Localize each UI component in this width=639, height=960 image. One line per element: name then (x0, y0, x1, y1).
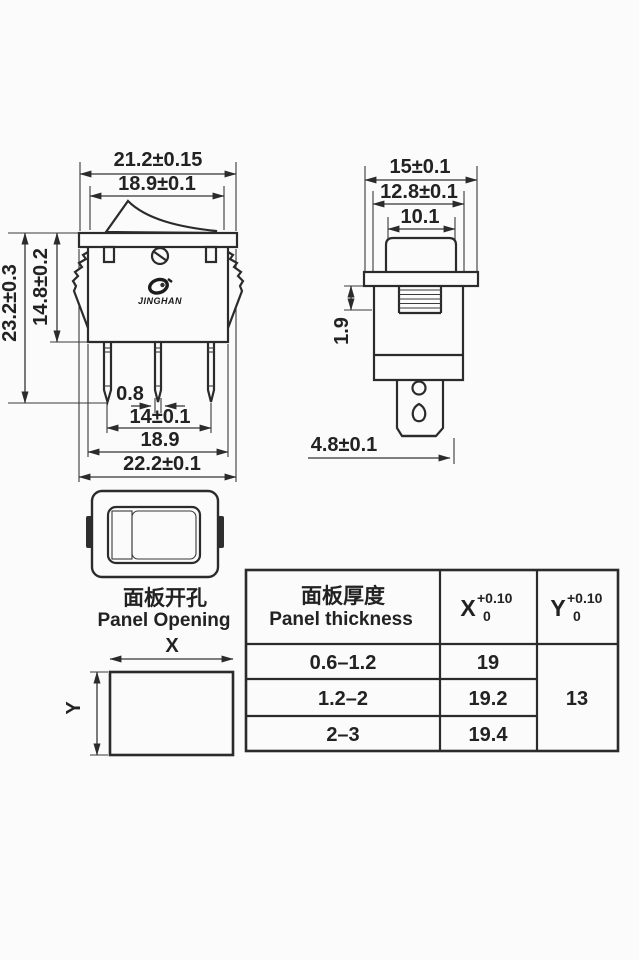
table-row: 2–3 19.4 (326, 724, 508, 746)
header-x-tol-minus: 0 (483, 608, 491, 624)
terminal-side (397, 380, 443, 436)
header-y-tol-plus: +0.10 (567, 590, 603, 606)
panel-opening-title-zh: 面板开孔 (123, 587, 207, 610)
table-row: 1.2–2 19.2 (318, 688, 508, 710)
dim-terminal-width: 4.8±0.1 (311, 434, 378, 456)
dim-pin-pitch: 14±0.1 (129, 406, 190, 428)
panel-opening-drawing: 面板开孔 Panel Opening X Y (63, 491, 233, 755)
dim-snap-height: 1.9 (331, 317, 353, 345)
side-view: 15±0.1 12.8±0.1 10.1 1.9 4.8±0.1 (308, 156, 478, 464)
header-x-base: X (460, 595, 476, 621)
cell-thickness-3: 2–3 (326, 724, 359, 746)
dim-rocker-width: 18.9±0.1 (118, 173, 196, 195)
dim-flange-depth: 15±0.1 (389, 156, 450, 178)
dim-flange-width-top: 21.2±0.15 (114, 149, 203, 171)
header-y-tol-minus: 0 (573, 608, 581, 624)
front-view: JINGHAN 21.2±0.15 18.9±0.1 23.2±0.3 14.8… (0, 149, 243, 482)
brand-logo: JINGHAN (138, 277, 182, 306)
dim-rocker-depth: 10.1 (401, 206, 440, 228)
table-row: 0.6–1.2 19 (310, 652, 499, 674)
dim-flange-width-bottom: 22.2±0.1 (123, 453, 201, 475)
mounting-flange-side (364, 272, 478, 286)
rocker-actuator-front (106, 201, 216, 233)
rocker-actuator-side (386, 238, 456, 272)
cell-thickness-1: 0.6–1.2 (310, 652, 377, 674)
x-dim-label: X (165, 635, 179, 657)
dim-body-width: 18.9 (141, 429, 180, 451)
cell-y-merged: 13 (566, 688, 588, 710)
switch-body-side (374, 286, 463, 380)
y-dim-label: Y (63, 701, 85, 715)
header-thickness-en: Panel thickness (269, 609, 413, 630)
snap-clip-left (73, 252, 88, 328)
header-x-tol-plus: +0.10 (477, 590, 513, 606)
cell-x-3: 19.4 (469, 724, 509, 746)
snap-ribs (399, 286, 441, 313)
cutout-rectangle (110, 672, 233, 755)
panel-opening-title-en: Panel Opening (97, 610, 230, 631)
dim-pin-thickness: 0.8 (116, 383, 144, 405)
technical-drawing: JINGHAN 21.2±0.15 18.9±0.1 23.2±0.3 14.8… (0, 0, 639, 960)
mounting-flange-front (79, 233, 237, 247)
cell-x-2: 19.2 (469, 688, 508, 710)
cell-thickness-2: 1.2–2 (318, 688, 368, 710)
header-thickness-zh: 面板厚度 (301, 584, 385, 608)
dim-body-depth: 12.8±0.1 (380, 181, 458, 203)
drawing-page: JINGHAN 21.2±0.15 18.9±0.1 23.2±0.3 14.8… (0, 0, 639, 960)
dim-total-height: 23.2±0.3 (0, 264, 21, 342)
cell-x-1: 19 (477, 652, 499, 674)
panel-thickness-table: 面板厚度 Panel thickness X +0.10 0 Y +0.10 0… (246, 570, 618, 751)
header-y-base: Y (550, 595, 565, 621)
brand-logo-text: JINGHAN (138, 296, 182, 306)
dim-body-height: 14.8±0.2 (30, 248, 52, 326)
